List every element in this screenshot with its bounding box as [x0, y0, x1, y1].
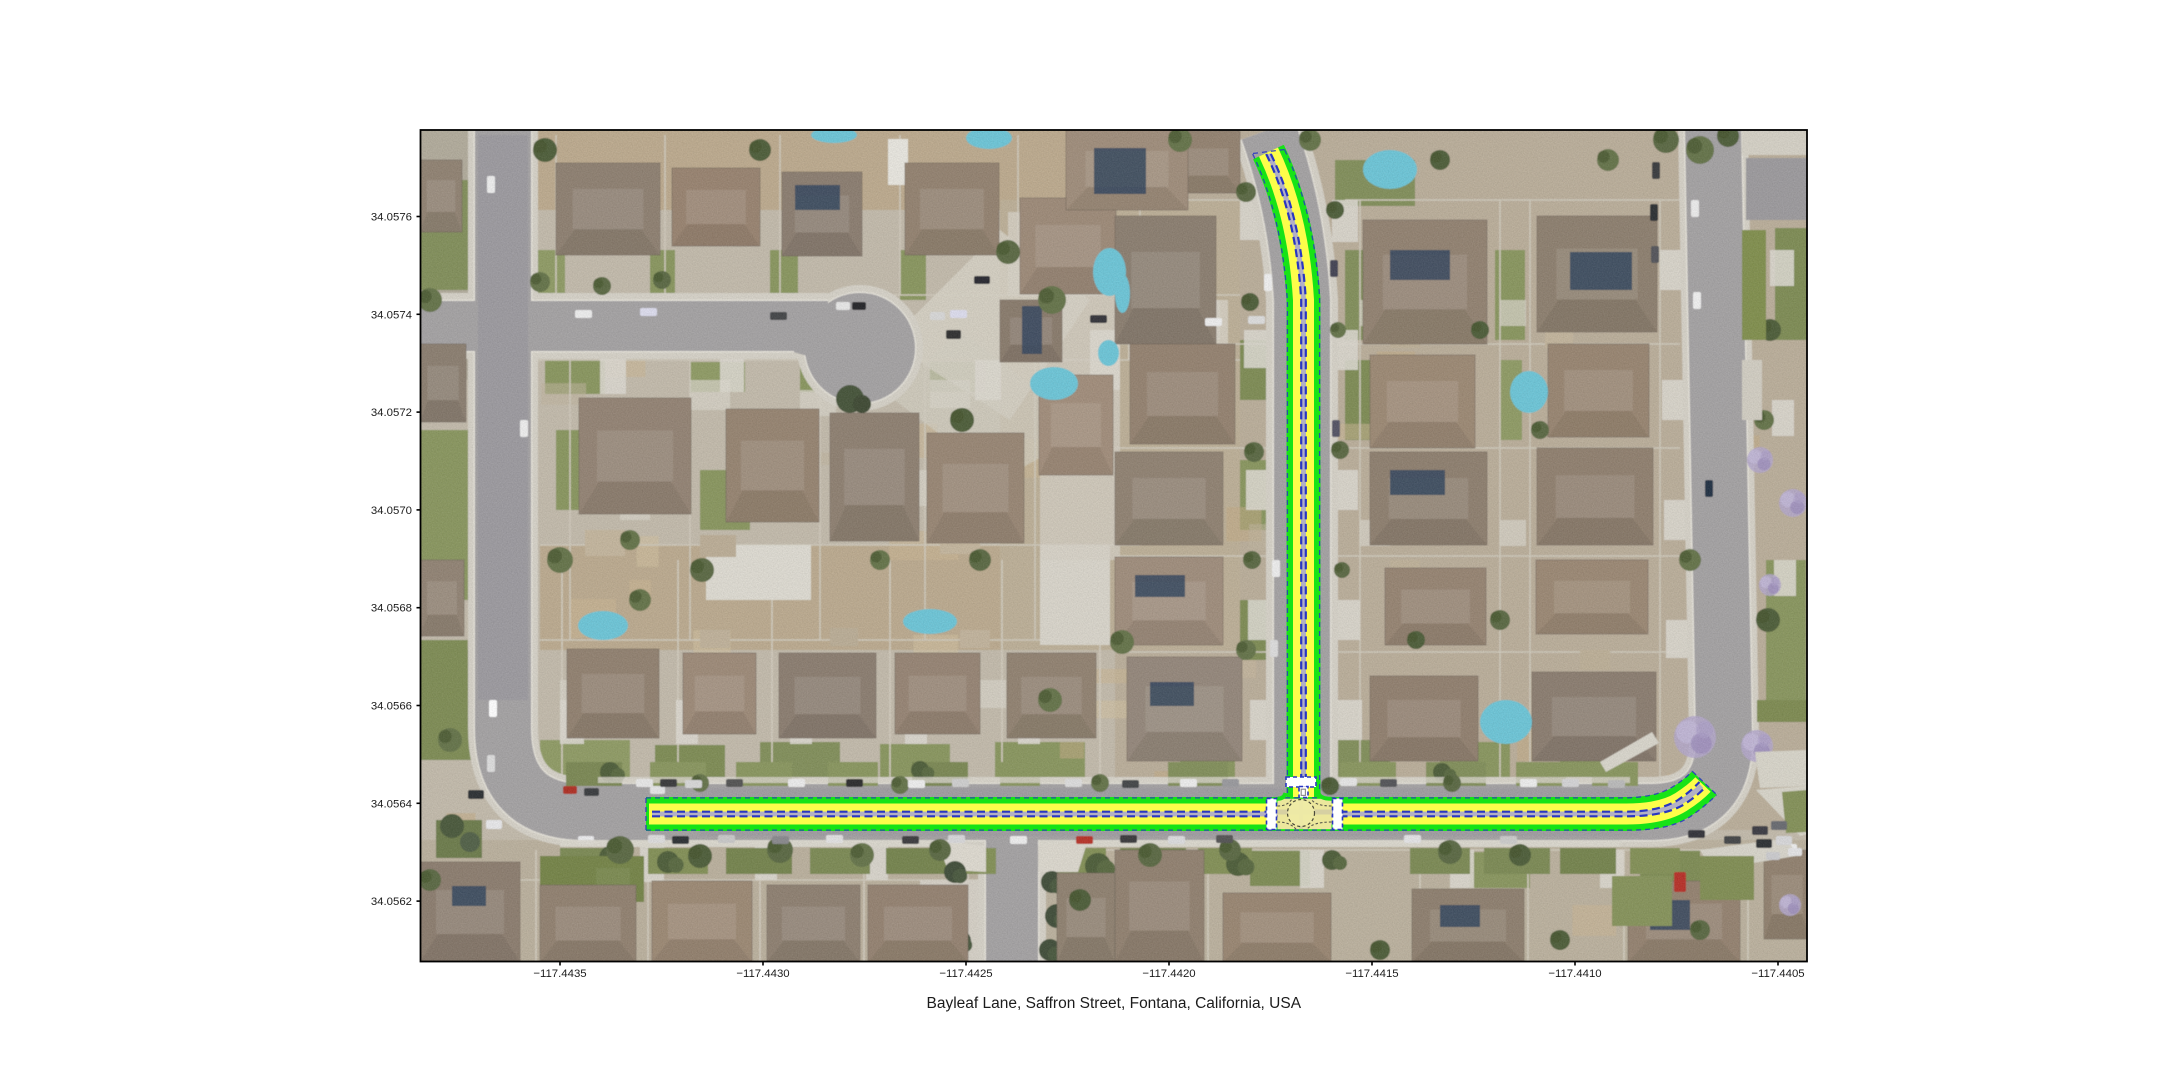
svg-text:34.0574: 34.0574 — [371, 309, 412, 321]
svg-text:34.0566: 34.0566 — [371, 701, 412, 713]
svg-text:34.0568: 34.0568 — [371, 603, 412, 615]
svg-text:34.0564: 34.0564 — [371, 798, 412, 810]
svg-text:−117.4405: −117.4405 — [1751, 968, 1804, 980]
svg-text:Bayleaf Lane, Saffron Street,: Bayleaf Lane, Saffron Street, Fontana, C… — [927, 995, 1302, 1012]
svg-text:34.0576: 34.0576 — [371, 212, 412, 224]
svg-text:−117.4410: −117.4410 — [1548, 968, 1601, 980]
svg-text:−117.4435: −117.4435 — [533, 968, 586, 980]
svg-text:−117.4425: −117.4425 — [939, 968, 992, 980]
svg-text:34.0572: 34.0572 — [371, 407, 412, 419]
svg-text:34.0562: 34.0562 — [371, 896, 412, 908]
svg-text:−117.4415: −117.4415 — [1345, 968, 1398, 980]
svg-text:−117.4420: −117.4420 — [1142, 968, 1195, 980]
svg-text:−117.4430: −117.4430 — [736, 968, 789, 980]
svg-text:34.0570: 34.0570 — [371, 505, 412, 517]
